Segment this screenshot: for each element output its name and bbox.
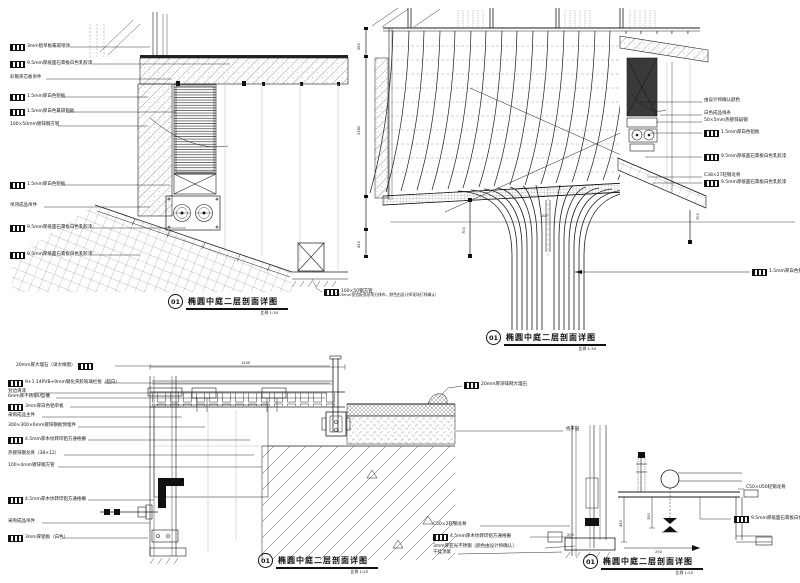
callout-text: 1.5mm厚白色铝板: [721, 131, 759, 136]
callout-text: 20mm厚大理石（详大样图）: [16, 364, 76, 369]
detail-title-text: 椭圆中庭二层剖面详图: [504, 330, 606, 346]
callout-text: 1.5mm厚白色铝板: [27, 95, 65, 100]
callout-tag: [8, 437, 23, 444]
callout-text: 20mm厚深啡网大理石: [481, 383, 527, 388]
callout-label: 9.5mm厚纸面石膏板白色乳胶漆: [10, 252, 92, 259]
detail-title-text: 椭圆中庭二层剖面详图: [186, 294, 288, 310]
callout-tag: [10, 225, 25, 232]
dim-label: 350: [647, 513, 651, 520]
callout-tag: [8, 497, 23, 504]
callout-label: 白色成品线条: [704, 112, 731, 117]
callout-label: 3mm铝单板氟碳喷涂: [10, 44, 70, 51]
callout-tag: [10, 252, 25, 259]
callout-tag: [10, 182, 25, 189]
callout-text: 6mm厚不锈钢U型槽: [8, 395, 50, 400]
dim-label: 280: [357, 43, 361, 50]
detail-number: 01: [583, 554, 598, 569]
callout-text: C38×27轻钢龙骨: [704, 174, 740, 179]
callout-label: 100×50mm镀锌钢方管: [10, 123, 59, 128]
callout-text: 采购成品主件: [8, 414, 35, 419]
detail-title-text: 椭圆中庭二层剖面详图: [601, 554, 703, 570]
callout-tag: [78, 363, 93, 370]
callout-text: 100×50mm镀锌钢方管: [10, 123, 59, 128]
note-label: （100mm宽铝板弧形等分排布，颜色由设计师现场打样确认）: [333, 293, 439, 297]
callout-tag: [704, 154, 719, 161]
callout-label: 20mm厚大理石（详大样图）: [16, 363, 93, 370]
callout-text: 4.5mm厚木纹转印铝方通格栅: [25, 438, 86, 443]
callout-text: 找平层: [566, 428, 580, 433]
dim-label: 200: [567, 533, 574, 537]
callout-text: 彩钢夹芯板吊件: [10, 76, 42, 81]
callout-text: 9+1.14PVB+9mm钢化夹胶玻璃栏板（超白）: [25, 381, 120, 386]
dim-label: 450: [357, 241, 361, 248]
callout-tag: [8, 535, 23, 542]
callout-text: 50×5mm热镀锌扁钢: [704, 119, 748, 124]
callout-label: 6mm厚不锈钢U型槽: [8, 395, 50, 400]
callout-label: 1.5mm厚白色铝板: [10, 182, 65, 189]
callout-label: 1.5mm厚白色铝板: [704, 130, 759, 137]
callout-tag: [704, 180, 719, 187]
callout-text: 由设计师确认颜色: [704, 99, 740, 104]
callout-text: 100×4mm镀锌钢方管: [8, 464, 55, 469]
callout-text: 9.5mm厚纸面石膏板白色乳胶漆: [27, 62, 92, 67]
callout-tag: [10, 94, 25, 101]
callout-label: 1.5mm厚白色铝板: [752, 269, 800, 276]
callout-text: 吊顶成品吊件: [10, 204, 37, 209]
callout-tag: [752, 269, 767, 276]
drawing-sheet: 3mm铝单板氟碳喷涂 9.5mm厚纸面石膏板白色乳胶漆 彩钢夹芯板吊件 1.5m…: [0, 0, 800, 583]
callout-label: 找平层: [566, 428, 580, 433]
callout-label: C38×27轻钢龙骨: [704, 174, 740, 179]
detail-top-right: [364, 8, 795, 330]
callout-text: 热镀锌钢龙骨（38×12）: [8, 452, 59, 457]
callout-label: 9.5mm厚纸面石膏板白色乳胶漆: [734, 516, 800, 523]
callout-tag: [464, 382, 479, 389]
callout-text: 1.5mm厚白色氟碳铝板: [27, 110, 74, 115]
callout-label: 9+1.14PVB+9mm钢化夹胶玻璃栏板（超白）: [8, 380, 120, 387]
callout-label: 50×5mm热镀锌扁钢: [704, 119, 748, 124]
callout-tag: [734, 516, 749, 523]
callout-text: 4.5mm厚木纹转印铝方通格栅: [25, 498, 86, 503]
callout-label: 9.5mm厚纸面石膏板白色乳胶漆: [704, 154, 786, 161]
callout-label: 1.5mm厚白色氟碳铝板: [10, 109, 74, 116]
detail-number: 01: [486, 330, 501, 345]
detail-number: 01: [258, 553, 273, 568]
callout-label: 干挂顶紧: [433, 551, 451, 556]
callout-label: 9.5mm厚纸面石膏板白色乳胶漆: [10, 61, 92, 68]
callout-label: 3mm厚白色铝单板: [8, 404, 64, 411]
callout-text: 1.5mm厚白色铝板: [27, 183, 65, 188]
detail-title-top-left: 01 椭圆中庭二层剖面详图 比例 1:30: [168, 294, 288, 316]
callout-label: 采购成品主件: [8, 414, 35, 419]
callout-tag: [10, 109, 25, 116]
callout-tag: [10, 61, 25, 68]
callout-text: 9.5mm厚纸面石膏板白色乳胶漆: [721, 155, 786, 160]
callout-label: 100×4mm镀锌钢方管: [8, 464, 55, 469]
callout-label: 彩钢夹芯板吊件: [10, 76, 42, 81]
detail-scale: 比例 1:25: [676, 570, 703, 576]
note-text: （100mm宽铝板弧形等分排布，颜色由设计师现场打样确认）: [333, 293, 439, 297]
callout-label: 300×300×6mm镀锌钢板预埋件: [8, 424, 76, 429]
callout-tag: [8, 404, 23, 411]
callout-label: 4.5mm厚木纹转印铝方通格栅: [8, 437, 86, 444]
dim-label: 700: [696, 213, 700, 220]
dim-label: 1500: [241, 361, 250, 365]
callout-text: 干挂顶紧: [433, 551, 451, 556]
detail-scale: 比例 1:30: [579, 346, 606, 352]
callout-text: 3mm铝单板氟碳喷涂: [27, 45, 70, 50]
callout-tag: [10, 44, 25, 51]
callout-label: 1.5mm厚白色铝板: [10, 94, 65, 101]
detail-title-bottom-left: 01 椭圆中庭二层剖面详图 比例 1:25: [258, 553, 378, 575]
detail-number: 01: [168, 294, 183, 309]
callout-text: 白色成品线条: [704, 112, 731, 117]
callout-text: 3mm厚白色铝单板: [25, 405, 64, 410]
callout-label: 吊顶成品吊件: [10, 204, 37, 209]
callout-text: 9.5mm厚纸面石膏板白色乳胶漆: [27, 253, 92, 258]
callout-text: C50×U50轻钢龙骨: [746, 486, 786, 491]
callout-text: 9.5mm厚纸面石膏板白色乳胶漆: [27, 226, 92, 231]
callout-tag: [433, 534, 448, 541]
callout-label: 热镀锌钢龙骨（38×12）: [8, 452, 59, 457]
callout-text: 4.5mm厚木纹转印铝方通格栅: [450, 535, 511, 540]
dim-label: 2380: [357, 126, 361, 135]
detail-title-top-right: 01 椭圆中庭二层剖面详图 比例 1:30: [486, 330, 606, 352]
callout-label: 9.5mm厚纸面石膏板白色乳胶漆: [10, 225, 92, 232]
callout-label: 9.5mm厚纸面石膏板白色乳胶漆: [704, 180, 786, 187]
callout-label: 4.5mm厚木纹转印铝方通格栅: [8, 497, 86, 504]
callout-label: 由设计师确认颜色: [704, 99, 740, 104]
callout-text: 9.5mm厚纸面石膏板白色乳胶漆: [751, 517, 800, 522]
dim-label: 700: [462, 227, 466, 234]
callout-label: 20mm厚深啡网大理石: [464, 382, 527, 389]
callout-text: 1.5mm厚白色铝板: [769, 270, 800, 275]
callout-label: C50×U50轻钢龙骨: [746, 486, 786, 491]
callout-text: 300×300×6mm镀锌钢板预埋件: [8, 424, 76, 429]
callout-label: 3mm厚铝板（白色）: [8, 535, 68, 542]
callout-text: C50×2轻钢龙骨: [433, 523, 467, 528]
callout-label: 采购成品吊件: [8, 520, 35, 525]
callout-label: C50×2轻钢龙骨: [433, 523, 467, 528]
callout-text: 3mm厚铝板（白色）: [25, 536, 68, 541]
callout-text: 9.5mm厚纸面石膏板白色乳胶漆: [721, 181, 786, 186]
detail-scale: 比例 1:25: [351, 569, 378, 575]
detail-title-text: 椭圆中庭二层剖面详图: [276, 553, 378, 569]
detail-scale: 比例 1:30: [261, 310, 288, 316]
callout-text: 采购成品吊件: [8, 520, 35, 525]
callout-label: 4.5mm厚木纹转印铝方通格栅: [433, 534, 511, 541]
detail-top-left: [12, 12, 348, 292]
callout-tag: [8, 380, 23, 387]
callout-tag: [704, 130, 719, 137]
detail-title-bottom-right: 01 椭圆中庭二层剖面详图 比例 1:25: [583, 554, 703, 576]
dim-label: 450: [619, 520, 623, 527]
dim-label: 100: [541, 214, 548, 218]
